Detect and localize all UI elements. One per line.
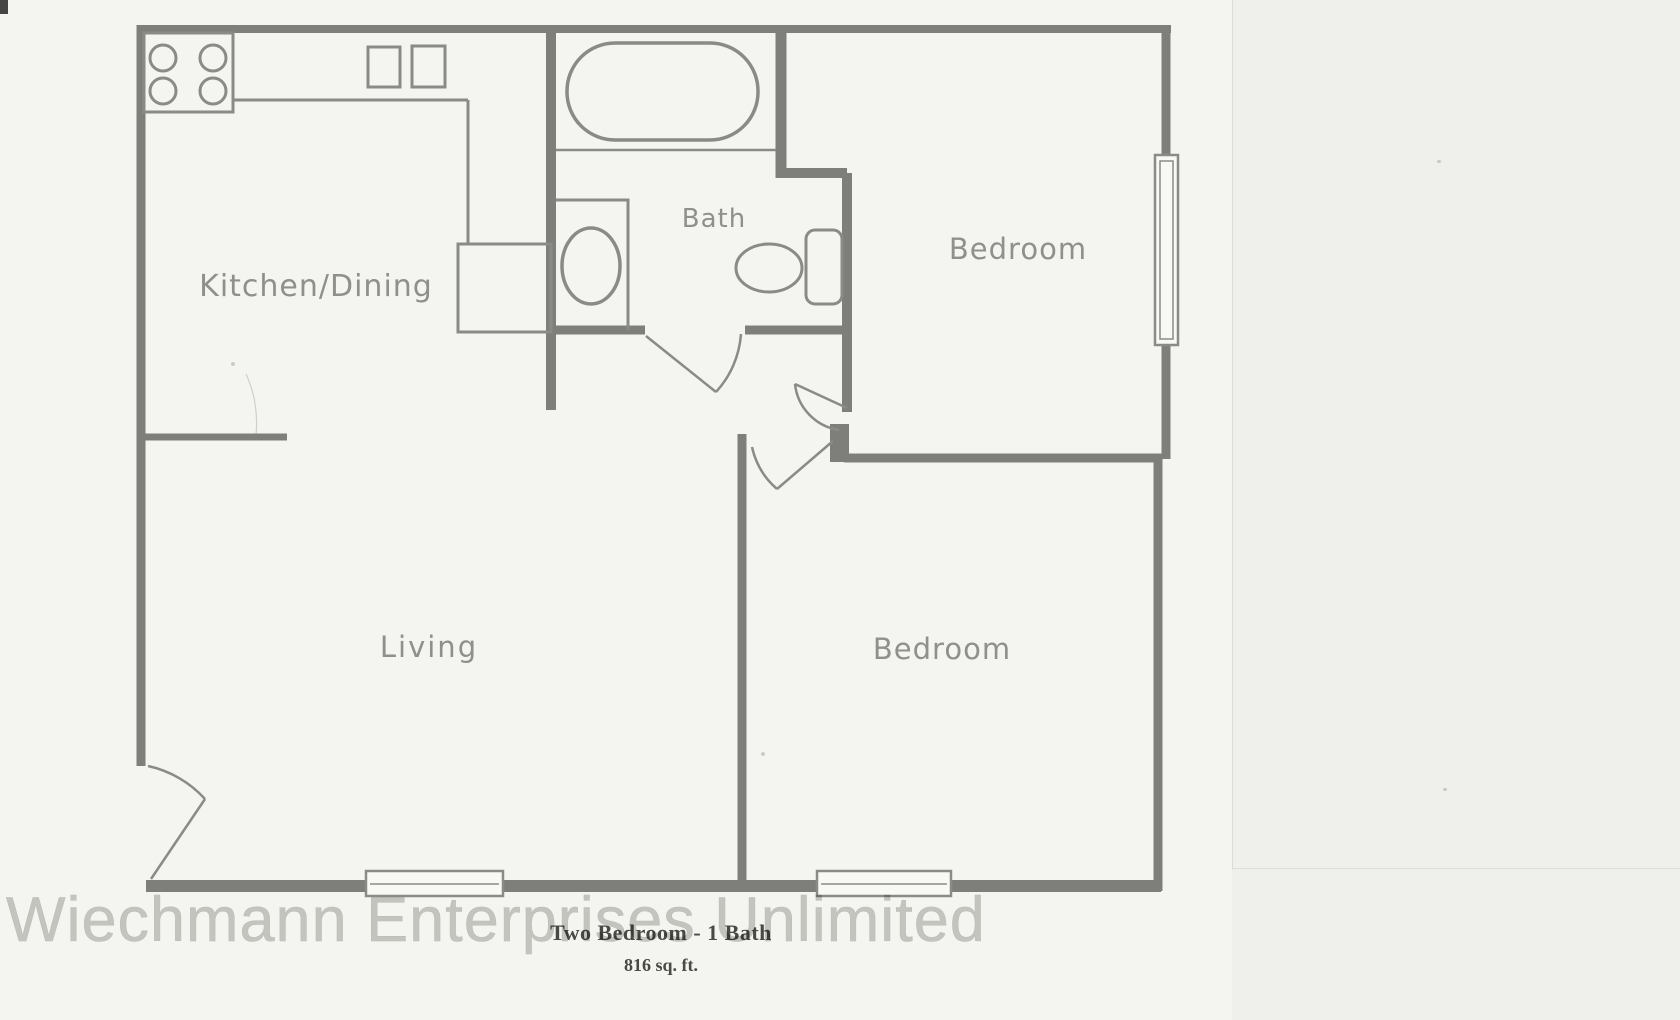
sink-basin-left [368,47,400,87]
sink-basin-right [412,46,445,87]
bathtub [556,43,776,150]
door-swing-arc [716,334,741,392]
scanned-floorplan-page: Kitchen/Dining Bath Bedroom Living Bedro… [0,0,1680,1020]
floorplan-drawing: Kitchen/Dining Bath Bedroom Living Bedro… [0,0,1680,1020]
door-leaf [777,441,833,489]
watermark-text: Wiechmann Enterprises Unlimited [6,884,986,956]
windows [366,155,1178,896]
window-bedroom-right [1155,155,1178,345]
caption-area: 816 sq. ft. [624,955,698,975]
room-labels: Kitchen/Dining Bath Bedroom Living Bedro… [199,204,1087,666]
speck [231,362,235,366]
kitchen-faint-door-arc [246,374,257,436]
tub-outline [567,43,758,140]
vanity-basin [562,228,620,304]
toilet-bowl [736,244,802,292]
door-swing-arc [795,384,839,430]
burner-icon [150,45,176,71]
burner-icon [200,45,226,71]
refrigerator [458,244,551,332]
stove [144,33,233,112]
room-label-bedroom-bottom: Bedroom [873,632,1011,666]
entry-door [148,766,205,879]
toilet-tank [806,230,842,304]
speck [1437,160,1441,163]
vanity-outline [556,200,628,330]
window-frame [1155,155,1178,345]
door-leaf [151,799,205,879]
room-label-bedroom-top: Bedroom [949,232,1087,266]
door-leaf [646,336,716,392]
scan-specks [231,362,765,756]
kitchen-sink [368,46,445,87]
burner-icon [150,78,176,104]
speck [1443,788,1447,791]
walls [137,25,1171,891]
door-swing-arc [148,766,205,799]
bedroom-top-door [795,384,847,430]
vanity-sink [556,200,628,330]
bedroom-bottom-door [752,441,833,489]
room-label-kitchen-dining: Kitchen/Dining [199,269,433,304]
room-label-bath: Bath [682,204,746,234]
bath-door [646,334,741,392]
speck [761,752,765,756]
burner-icon [200,78,226,104]
door-swing-arc [752,447,777,489]
room-label-living: Living [380,630,478,664]
toilet [736,230,842,304]
